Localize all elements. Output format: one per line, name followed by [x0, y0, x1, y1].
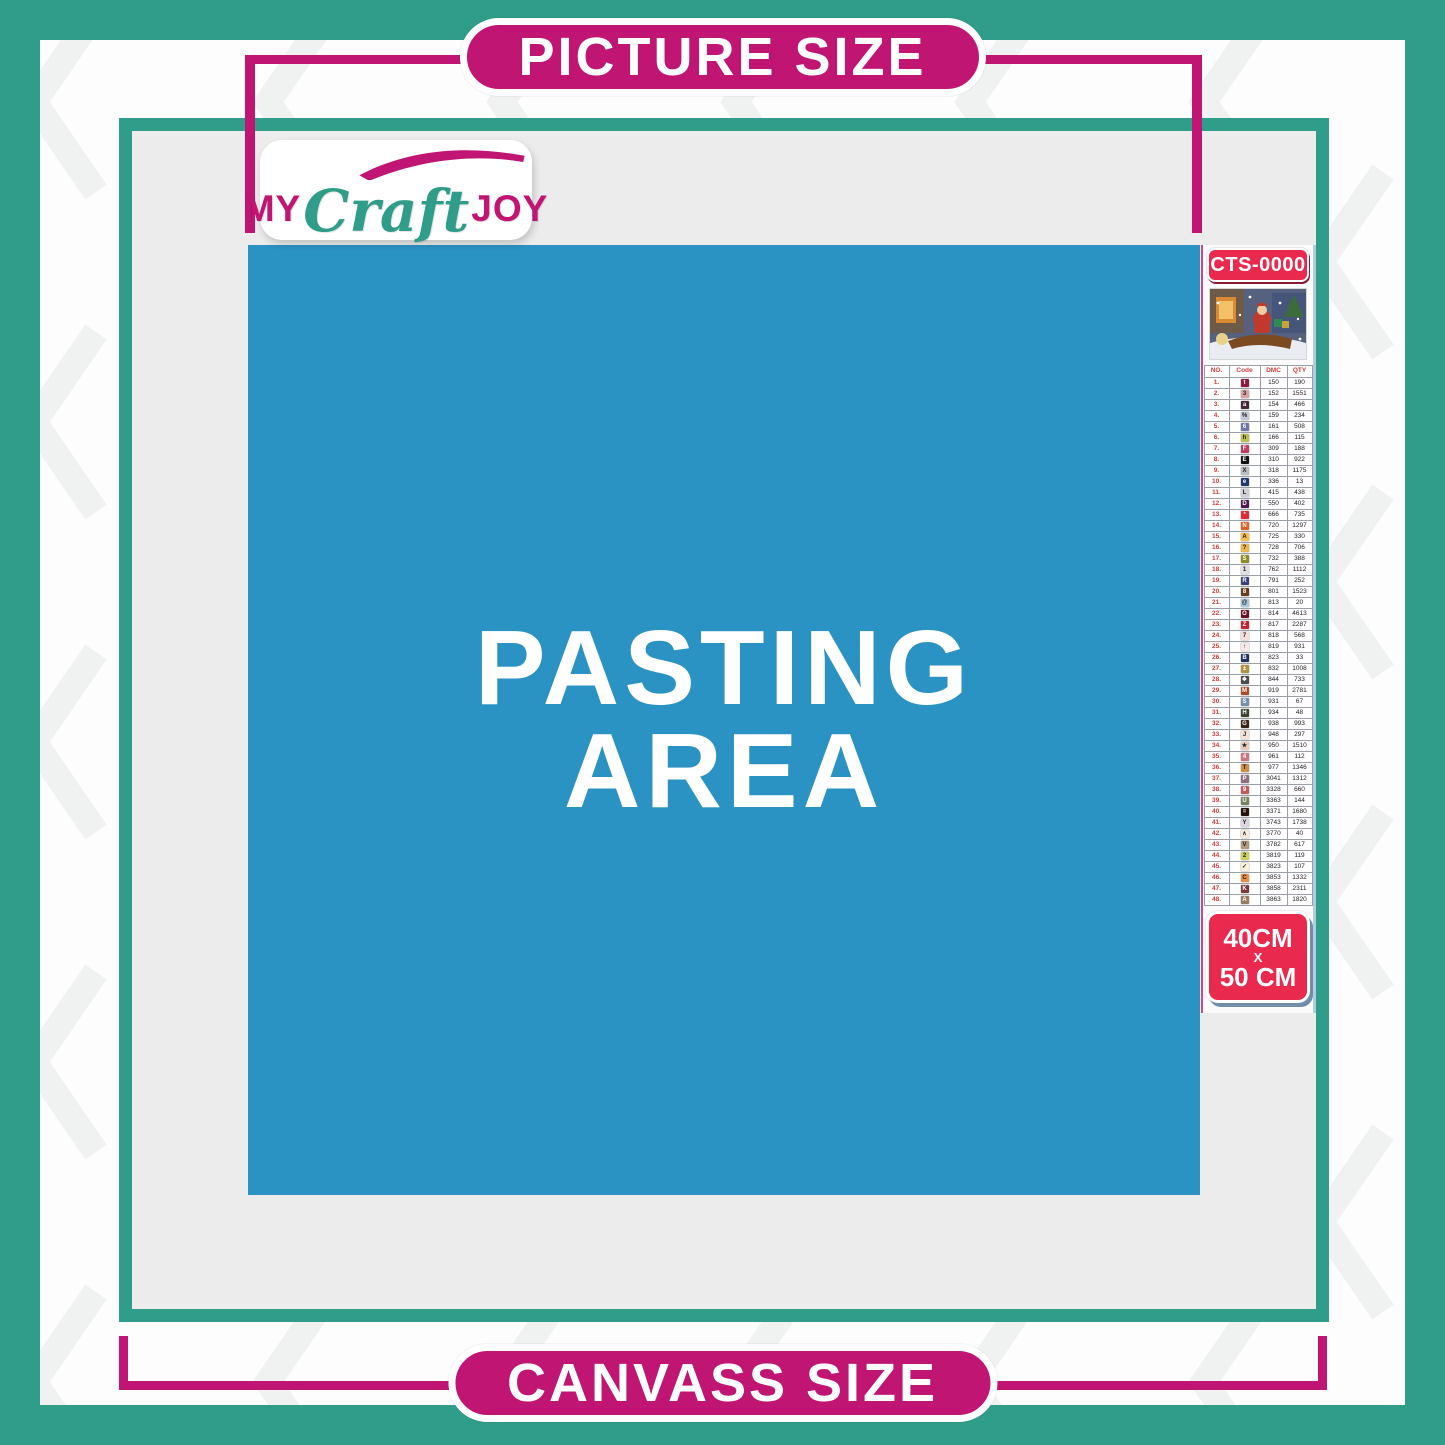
- dmc-row-dmc: 919: [1260, 686, 1287, 697]
- dmc-row-number: 24.: [1204, 631, 1229, 642]
- dmc-row: 40.=33711680: [1204, 807, 1312, 818]
- dmc-row-number: 5.: [1204, 422, 1229, 433]
- dmc-row-code: a: [1229, 400, 1260, 411]
- dmc-row-number: 19.: [1204, 576, 1229, 587]
- dmc-row-code: K: [1229, 884, 1260, 895]
- dmc-row-dmc: 3863: [1260, 895, 1287, 906]
- dmc-row-code: L: [1229, 488, 1260, 499]
- dmc-row-dmc: 3823: [1260, 862, 1287, 873]
- dmc-row-number: 14.: [1204, 521, 1229, 532]
- dmc-row-qty: 568: [1287, 631, 1312, 642]
- dmc-symbol-swatch: O: [1241, 610, 1249, 618]
- header-no: NO.: [1204, 366, 1229, 378]
- dmc-row-qty: 922: [1287, 455, 1312, 466]
- size-width-label: 40CM: [1223, 925, 1292, 951]
- dmc-row-number: 26.: [1204, 653, 1229, 664]
- dmc-row-code: Z: [1229, 620, 1260, 631]
- dmc-row-qty: 20: [1287, 598, 1312, 609]
- diamond-painting-size-diagram: PICTURE SIZE CANVASS SIZE MY Craft JOY P…: [0, 0, 1445, 1445]
- dmc-color-table: NO. Code DMC QTY 1.t1501902.315215513.a1…: [1204, 365, 1313, 906]
- dmc-row-dmc: 3371: [1260, 807, 1287, 818]
- dmc-symbol-swatch: C: [1241, 874, 1249, 882]
- dmc-row-dmc: 819: [1260, 642, 1287, 653]
- logo-word-joy: JOY: [471, 188, 548, 230]
- dmc-symbol-swatch: A: [1241, 896, 1249, 904]
- kit-preview-image: [1210, 289, 1306, 359]
- dmc-symbol-swatch: ∧: [1241, 830, 1249, 838]
- dmc-row-code: E: [1229, 455, 1260, 466]
- dmc-symbol-swatch: N: [1241, 522, 1249, 530]
- dmc-row-code: h: [1229, 433, 1260, 444]
- dmc-row-dmc: 309: [1260, 444, 1287, 455]
- dmc-row-qty: 48: [1287, 708, 1312, 719]
- dmc-row-qty: 993: [1287, 719, 1312, 730]
- dmc-symbol-swatch: h: [1241, 434, 1249, 442]
- dmc-row-code: Y: [1229, 818, 1260, 829]
- dmc-row: 13.*666735: [1204, 510, 1312, 521]
- dmc-row-number: 7.: [1204, 444, 1229, 455]
- picture-size-banner-label: PICTURE SIZE: [518, 26, 926, 88]
- dmc-row-code: t: [1229, 378, 1260, 389]
- dmc-symbol-swatch: *: [1241, 511, 1249, 519]
- dmc-row-qty: 1680: [1287, 807, 1312, 818]
- dmc-row-number: 9.: [1204, 466, 1229, 477]
- header-qty: QTY: [1287, 366, 1312, 378]
- dmc-row: 33.J948297: [1204, 730, 1312, 741]
- dmc-row-code: =: [1229, 807, 1260, 818]
- dmc-symbol-swatch: ★: [1241, 742, 1249, 750]
- dmc-row-qty: 190: [1287, 378, 1312, 389]
- dmc-row-code: O: [1229, 609, 1260, 620]
- dmc-symbol-swatch: M: [1241, 687, 1249, 695]
- dmc-row: 42.∧377040: [1204, 829, 1312, 840]
- dmc-symbol-swatch: Z: [1241, 621, 1249, 629]
- dmc-row-dmc: 3782: [1260, 840, 1287, 851]
- dmc-row-code: R: [1229, 576, 1260, 587]
- dmc-row-code: e: [1229, 477, 1260, 488]
- header-code: Code: [1229, 366, 1260, 378]
- dmc-row-code: ∧: [1229, 829, 1260, 840]
- dmc-row-code: D: [1229, 499, 1260, 510]
- dmc-row-code: 7: [1229, 631, 1260, 642]
- dmc-row-code: ★: [1229, 741, 1260, 752]
- dmc-symbol-swatch: B: [1241, 654, 1249, 662]
- dmc-row: 1.t150190: [1204, 378, 1312, 389]
- dmc-row-code: S: [1229, 554, 1260, 565]
- dmc-row-dmc: 166: [1260, 433, 1287, 444]
- dmc-row-dmc: 931: [1260, 697, 1287, 708]
- dmc-row-qty: 330: [1287, 532, 1312, 543]
- dmc-symbol-swatch: X: [1241, 467, 1249, 475]
- logo-word-craft: Craft: [303, 188, 469, 234]
- dmc-table-body: 1.t1501902.315215513.a1544664.%1592345.6…: [1204, 378, 1312, 906]
- dmc-row-dmc: 948: [1260, 730, 1287, 741]
- dmc-row-number: 22.: [1204, 609, 1229, 620]
- dmc-row-qty: 107: [1287, 862, 1312, 873]
- dmc-row: 4.%159234: [1204, 411, 1312, 422]
- dmc-row-qty: 706: [1287, 543, 1312, 554]
- dmc-row-number: 17.: [1204, 554, 1229, 565]
- dmc-row-number: 8.: [1204, 455, 1229, 466]
- dmc-row-number: 15.: [1204, 532, 1229, 543]
- dmc-row: 38.93328660: [1204, 785, 1312, 796]
- dmc-symbol-swatch: %: [1241, 412, 1249, 420]
- dmc-symbol-swatch: 1: [1241, 566, 1249, 574]
- kit-code-badge: CTS-0000: [1207, 248, 1309, 282]
- dmc-row-number: 12.: [1204, 499, 1229, 510]
- dmc-row-code: ↑: [1229, 642, 1260, 653]
- dmc-row: 35.4961112: [1204, 752, 1312, 763]
- dmc-row: 21.@81320: [1204, 598, 1312, 609]
- dmc-row: 46.C38531332: [1204, 873, 1312, 884]
- dmc-row-qty: 1297: [1287, 521, 1312, 532]
- dmc-row-number: 35.: [1204, 752, 1229, 763]
- logo-word-my: MY: [244, 188, 302, 230]
- dmc-symbol-swatch: R: [1241, 577, 1249, 585]
- dmc-row: 44.23819119: [1204, 851, 1312, 862]
- logo-brush-swash-icon: [358, 144, 526, 180]
- dmc-row-code: X: [1229, 466, 1260, 477]
- dmc-row: 34.★9501510: [1204, 741, 1312, 752]
- dmc-row-number: 23.: [1204, 620, 1229, 631]
- dmc-row: 43.V3782617: [1204, 840, 1312, 851]
- dmc-symbol-swatch: F: [1241, 445, 1249, 453]
- dmc-row-dmc: 961: [1260, 752, 1287, 763]
- dmc-row-qty: 402: [1287, 499, 1312, 510]
- dmc-row-qty: 188: [1287, 444, 1312, 455]
- dmc-symbol-swatch: @: [1241, 599, 1249, 607]
- dmc-row-qty: 1332: [1287, 873, 1312, 884]
- dmc-symbol-swatch: 6: [1241, 423, 1249, 431]
- dmc-row: 3.a154466: [1204, 400, 1312, 411]
- dmc-row: 47.K38582311: [1204, 884, 1312, 895]
- dmc-symbol-swatch: D: [1241, 500, 1249, 508]
- dmc-row-qty: 388: [1287, 554, 1312, 565]
- dmc-row-dmc: 154: [1260, 400, 1287, 411]
- dmc-row-number: 41.: [1204, 818, 1229, 829]
- dmc-row-code: ?: [1229, 543, 1260, 554]
- dmc-row-qty: 733: [1287, 675, 1312, 686]
- dmc-row-number: 39.: [1204, 796, 1229, 807]
- dmc-row-number: 29.: [1204, 686, 1229, 697]
- dmc-row: 12.D550402: [1204, 499, 1312, 510]
- dmc-symbol-swatch: 4: [1241, 753, 1249, 761]
- dmc-row-dmc: 844: [1260, 675, 1287, 686]
- dmc-row-qty: 1346: [1287, 763, 1312, 774]
- dmc-row-code: 8: [1229, 587, 1260, 598]
- dmc-row: 23.Z8172287: [1204, 620, 1312, 631]
- dmc-symbol-swatch: e: [1241, 478, 1249, 486]
- dmc-row-code: 1: [1229, 565, 1260, 576]
- pasting-area-line1: PASTING: [475, 617, 973, 720]
- dmc-row-dmc: 832: [1260, 664, 1287, 675]
- dmc-row-dmc: 938: [1260, 719, 1287, 730]
- dmc-symbol-swatch: U: [1241, 797, 1249, 805]
- dmc-row-code: *: [1229, 510, 1260, 521]
- dmc-row-dmc: 813: [1260, 598, 1287, 609]
- dmc-row-number: 21.: [1204, 598, 1229, 609]
- dmc-symbol-swatch: 3: [1241, 390, 1249, 398]
- dmc-row-dmc: 3743: [1260, 818, 1287, 829]
- dmc-row-dmc: 318: [1260, 466, 1287, 477]
- dmc-row-qty: 2311: [1287, 884, 1312, 895]
- dmc-symbol-swatch: H: [1241, 709, 1249, 717]
- dmc-row-qty: 67: [1287, 697, 1312, 708]
- dmc-row-qty: 144: [1287, 796, 1312, 807]
- dmc-row-number: 43.: [1204, 840, 1229, 851]
- canvass-size-banner-label: CANVASS SIZE: [507, 1352, 938, 1414]
- brand-logo: MY Craft JOY: [260, 140, 532, 240]
- dmc-row-dmc: 814: [1260, 609, 1287, 620]
- dmc-row-dmc: 818: [1260, 631, 1287, 642]
- dmc-row-dmc: 3858: [1260, 884, 1287, 895]
- dmc-row-code: %: [1229, 411, 1260, 422]
- dmc-row-code: V: [1229, 840, 1260, 851]
- dmc-row-dmc: 725: [1260, 532, 1287, 543]
- dmc-row-number: 20.: [1204, 587, 1229, 598]
- dmc-row-code: ±: [1229, 664, 1260, 675]
- dmc-row: 5.6161508: [1204, 422, 1312, 433]
- dmc-row: 17.S732388: [1204, 554, 1312, 565]
- dmc-row-number: 48.: [1204, 895, 1229, 906]
- dmc-row-code: 3: [1229, 389, 1260, 400]
- dmc-symbol-swatch: L: [1241, 489, 1249, 497]
- dmc-symbol-swatch: S: [1241, 698, 1249, 706]
- dmc-row: 16.?728706: [1204, 543, 1312, 554]
- dmc-row-code: A: [1229, 532, 1260, 543]
- dmc-symbol-swatch: 2: [1241, 852, 1249, 860]
- dmc-row: 28.❖844733: [1204, 675, 1312, 686]
- dmc-row-qty: 33: [1287, 653, 1312, 664]
- dmc-row: 10.e33613: [1204, 477, 1312, 488]
- dmc-row-number: 46.: [1204, 873, 1229, 884]
- dmc-row: 11.L415438: [1204, 488, 1312, 499]
- dmc-row-dmc: 823: [1260, 653, 1287, 664]
- dmc-row-dmc: 950: [1260, 741, 1287, 752]
- dmc-row-qty: 931: [1287, 642, 1312, 653]
- dmc-row-dmc: 666: [1260, 510, 1287, 521]
- canvas-size-badge: 40CM X 50 CM: [1206, 911, 1310, 1003]
- dmc-row: 7.F309188: [1204, 444, 1312, 455]
- dmc-row-number: 1.: [1204, 378, 1229, 389]
- dmc-symbol-swatch: S: [1241, 555, 1249, 563]
- dmc-row-number: 13.: [1204, 510, 1229, 521]
- dmc-row: 14.N7201297: [1204, 521, 1312, 532]
- dmc-table-header-row: NO. Code DMC QTY: [1204, 366, 1312, 378]
- dmc-row-dmc: 728: [1260, 543, 1287, 554]
- dmc-row-code: P: [1229, 774, 1260, 785]
- dmc-symbol-swatch: ✓: [1241, 863, 1249, 871]
- pasting-area: PASTING AREA: [248, 245, 1200, 1195]
- dmc-row-number: 25.: [1204, 642, 1229, 653]
- dmc-symbol-swatch: ↑: [1241, 643, 1249, 651]
- dmc-row-qty: 252: [1287, 576, 1312, 587]
- dmc-row-qty: 1112: [1287, 565, 1312, 576]
- dmc-row-dmc: 3363: [1260, 796, 1287, 807]
- dmc-row-number: 32.: [1204, 719, 1229, 730]
- dmc-row: 48.A38631820: [1204, 895, 1312, 906]
- dmc-row: 22.O8144613: [1204, 609, 1312, 620]
- dmc-row-code: 9: [1229, 785, 1260, 796]
- dmc-row-number: 44.: [1204, 851, 1229, 862]
- dmc-row-dmc: 801: [1260, 587, 1287, 598]
- dmc-symbol-swatch: 9: [1241, 786, 1249, 794]
- dmc-row-dmc: 3853: [1260, 873, 1287, 884]
- dmc-row: 30.S93167: [1204, 697, 1312, 708]
- dmc-row-dmc: 934: [1260, 708, 1287, 719]
- dmc-row: 8.E310922: [1204, 455, 1312, 466]
- dmc-symbol-swatch: A: [1241, 533, 1249, 541]
- dmc-row-number: 38.: [1204, 785, 1229, 796]
- dmc-row-code: A: [1229, 895, 1260, 906]
- dmc-row: 18.17621112: [1204, 565, 1312, 576]
- dmc-row-code: J: [1229, 730, 1260, 741]
- dmc-row-dmc: 3328: [1260, 785, 1287, 796]
- dmc-row: 31.H93448: [1204, 708, 1312, 719]
- dmc-row-dmc: 817: [1260, 620, 1287, 631]
- dmc-row: 29.M9192781: [1204, 686, 1312, 697]
- dmc-row-number: 30.: [1204, 697, 1229, 708]
- dmc-row-number: 33.: [1204, 730, 1229, 741]
- dmc-row-dmc: 720: [1260, 521, 1287, 532]
- dmc-row-dmc: 415: [1260, 488, 1287, 499]
- dmc-row-code: ❖: [1229, 675, 1260, 686]
- dmc-row-qty: 660: [1287, 785, 1312, 796]
- dmc-row: 20.88011523: [1204, 587, 1312, 598]
- dmc-symbol-swatch: a: [1241, 401, 1249, 409]
- dmc-row: 6.h166115: [1204, 433, 1312, 444]
- dmc-row-code: F: [1229, 444, 1260, 455]
- dmc-row-code: B: [1229, 653, 1260, 664]
- dmc-row: 9.X3181175: [1204, 466, 1312, 477]
- dmc-symbol-swatch: E: [1241, 456, 1249, 464]
- dmc-row-dmc: 3819: [1260, 851, 1287, 862]
- dmc-row-number: 16.: [1204, 543, 1229, 554]
- dmc-row: 45.✓3823107: [1204, 862, 1312, 873]
- dmc-row-number: 40.: [1204, 807, 1229, 818]
- dmc-row-dmc: 336: [1260, 477, 1287, 488]
- dmc-row-code: G: [1229, 719, 1260, 730]
- dmc-row-qty: 112: [1287, 752, 1312, 763]
- dmc-row-qty: 2781: [1287, 686, 1312, 697]
- dmc-symbol-swatch: t: [1241, 379, 1249, 387]
- dmc-row-qty: 1008: [1287, 664, 1312, 675]
- dmc-symbol-swatch: K: [1241, 885, 1249, 893]
- dmc-row-qty: 1551: [1287, 389, 1312, 400]
- dmc-row-qty: 508: [1287, 422, 1312, 433]
- dmc-row-code: ✓: [1229, 862, 1260, 873]
- dmc-row: 19.R791252: [1204, 576, 1312, 587]
- dmc-row-number: 4.: [1204, 411, 1229, 422]
- dmc-row-code: S: [1229, 697, 1260, 708]
- dmc-row-dmc: 732: [1260, 554, 1287, 565]
- dmc-symbol-swatch: P: [1241, 775, 1249, 783]
- dmc-symbol-swatch: G: [1241, 720, 1249, 728]
- dmc-row-qty: 234: [1287, 411, 1312, 422]
- dmc-row-qty: 297: [1287, 730, 1312, 741]
- dmc-row-dmc: 762: [1260, 565, 1287, 576]
- header-dmc: DMC: [1260, 366, 1287, 378]
- dmc-row-qty: 1510: [1287, 741, 1312, 752]
- dmc-row-dmc: 791: [1260, 576, 1287, 587]
- dmc-row: 27.±8321008: [1204, 664, 1312, 675]
- dmc-row-dmc: 550: [1260, 499, 1287, 510]
- dmc-row-qty: 1523: [1287, 587, 1312, 598]
- dmc-row: 25.↑819931: [1204, 642, 1312, 653]
- dmc-row-qty: 466: [1287, 400, 1312, 411]
- dmc-row-qty: 1820: [1287, 895, 1312, 906]
- dmc-row-dmc: 3041: [1260, 774, 1287, 785]
- dmc-row-dmc: 159: [1260, 411, 1287, 422]
- dmc-row-dmc: 310: [1260, 455, 1287, 466]
- dmc-row-qty: 617: [1287, 840, 1312, 851]
- dmc-row-qty: 438: [1287, 488, 1312, 499]
- dmc-symbol-swatch: V: [1241, 841, 1249, 849]
- dmc-row-number: 45.: [1204, 862, 1229, 873]
- dmc-row-number: 2.: [1204, 389, 1229, 400]
- dmc-symbol-swatch: 7: [1241, 632, 1249, 640]
- dmc-row-qty: 1738: [1287, 818, 1312, 829]
- dmc-symbol-swatch: 8: [1241, 588, 1249, 596]
- dmc-row-code: 2: [1229, 851, 1260, 862]
- dmc-row-code: H: [1229, 708, 1260, 719]
- dmc-row-dmc: 977: [1260, 763, 1287, 774]
- dmc-row: 41.Y37431738: [1204, 818, 1312, 829]
- dmc-row-number: 42.: [1204, 829, 1229, 840]
- dmc-row-number: 37.: [1204, 774, 1229, 785]
- dmc-row-qty: 13: [1287, 477, 1312, 488]
- dmc-row-code: C: [1229, 873, 1260, 884]
- dmc-row-code: N: [1229, 521, 1260, 532]
- dmc-row: 26.B82333: [1204, 653, 1312, 664]
- dmc-row: 32.G938993: [1204, 719, 1312, 730]
- dmc-row-number: 3.: [1204, 400, 1229, 411]
- picture-size-banner: PICTURE SIZE: [459, 18, 985, 96]
- dmc-row-dmc: 150: [1260, 378, 1287, 389]
- dmc-row-qty: 4613: [1287, 609, 1312, 620]
- dmc-row-number: 34.: [1204, 741, 1229, 752]
- dmc-row-code: 4: [1229, 752, 1260, 763]
- dmc-row: 39.U3363144: [1204, 796, 1312, 807]
- dmc-row-qty: 115: [1287, 433, 1312, 444]
- color-legend-strip: CTS-0000 NO.: [1201, 245, 1316, 1013]
- dmc-row: 36.T9771346: [1204, 763, 1312, 774]
- dmc-row: 24.7818568: [1204, 631, 1312, 642]
- dmc-row-dmc: 161: [1260, 422, 1287, 433]
- dmc-row-qty: 1175: [1287, 466, 1312, 477]
- dmc-row: 2.31521551: [1204, 389, 1312, 400]
- dmc-row-code: M: [1229, 686, 1260, 697]
- size-height-label: 50 CM: [1220, 964, 1297, 990]
- dmc-row-qty: 40: [1287, 829, 1312, 840]
- dmc-row-code: U: [1229, 796, 1260, 807]
- dmc-symbol-swatch: Y: [1241, 819, 1249, 827]
- dmc-row-number: 47.: [1204, 884, 1229, 895]
- dmc-row-code: T: [1229, 763, 1260, 774]
- dmc-row-number: 6.: [1204, 433, 1229, 444]
- dmc-row-qty: 119: [1287, 851, 1312, 862]
- dmc-row-dmc: 152: [1260, 389, 1287, 400]
- dmc-symbol-swatch: =: [1241, 808, 1249, 816]
- dmc-symbol-swatch: ?: [1241, 544, 1249, 552]
- dmc-row-qty: 2287: [1287, 620, 1312, 631]
- dmc-row-number: 36.: [1204, 763, 1229, 774]
- dmc-row-number: 28.: [1204, 675, 1229, 686]
- canvass-size-banner: CANVASS SIZE: [448, 1344, 997, 1422]
- dmc-symbol-swatch: J: [1241, 731, 1249, 739]
- pasting-area-line2: AREA: [564, 720, 884, 823]
- dmc-row-number: 27.: [1204, 664, 1229, 675]
